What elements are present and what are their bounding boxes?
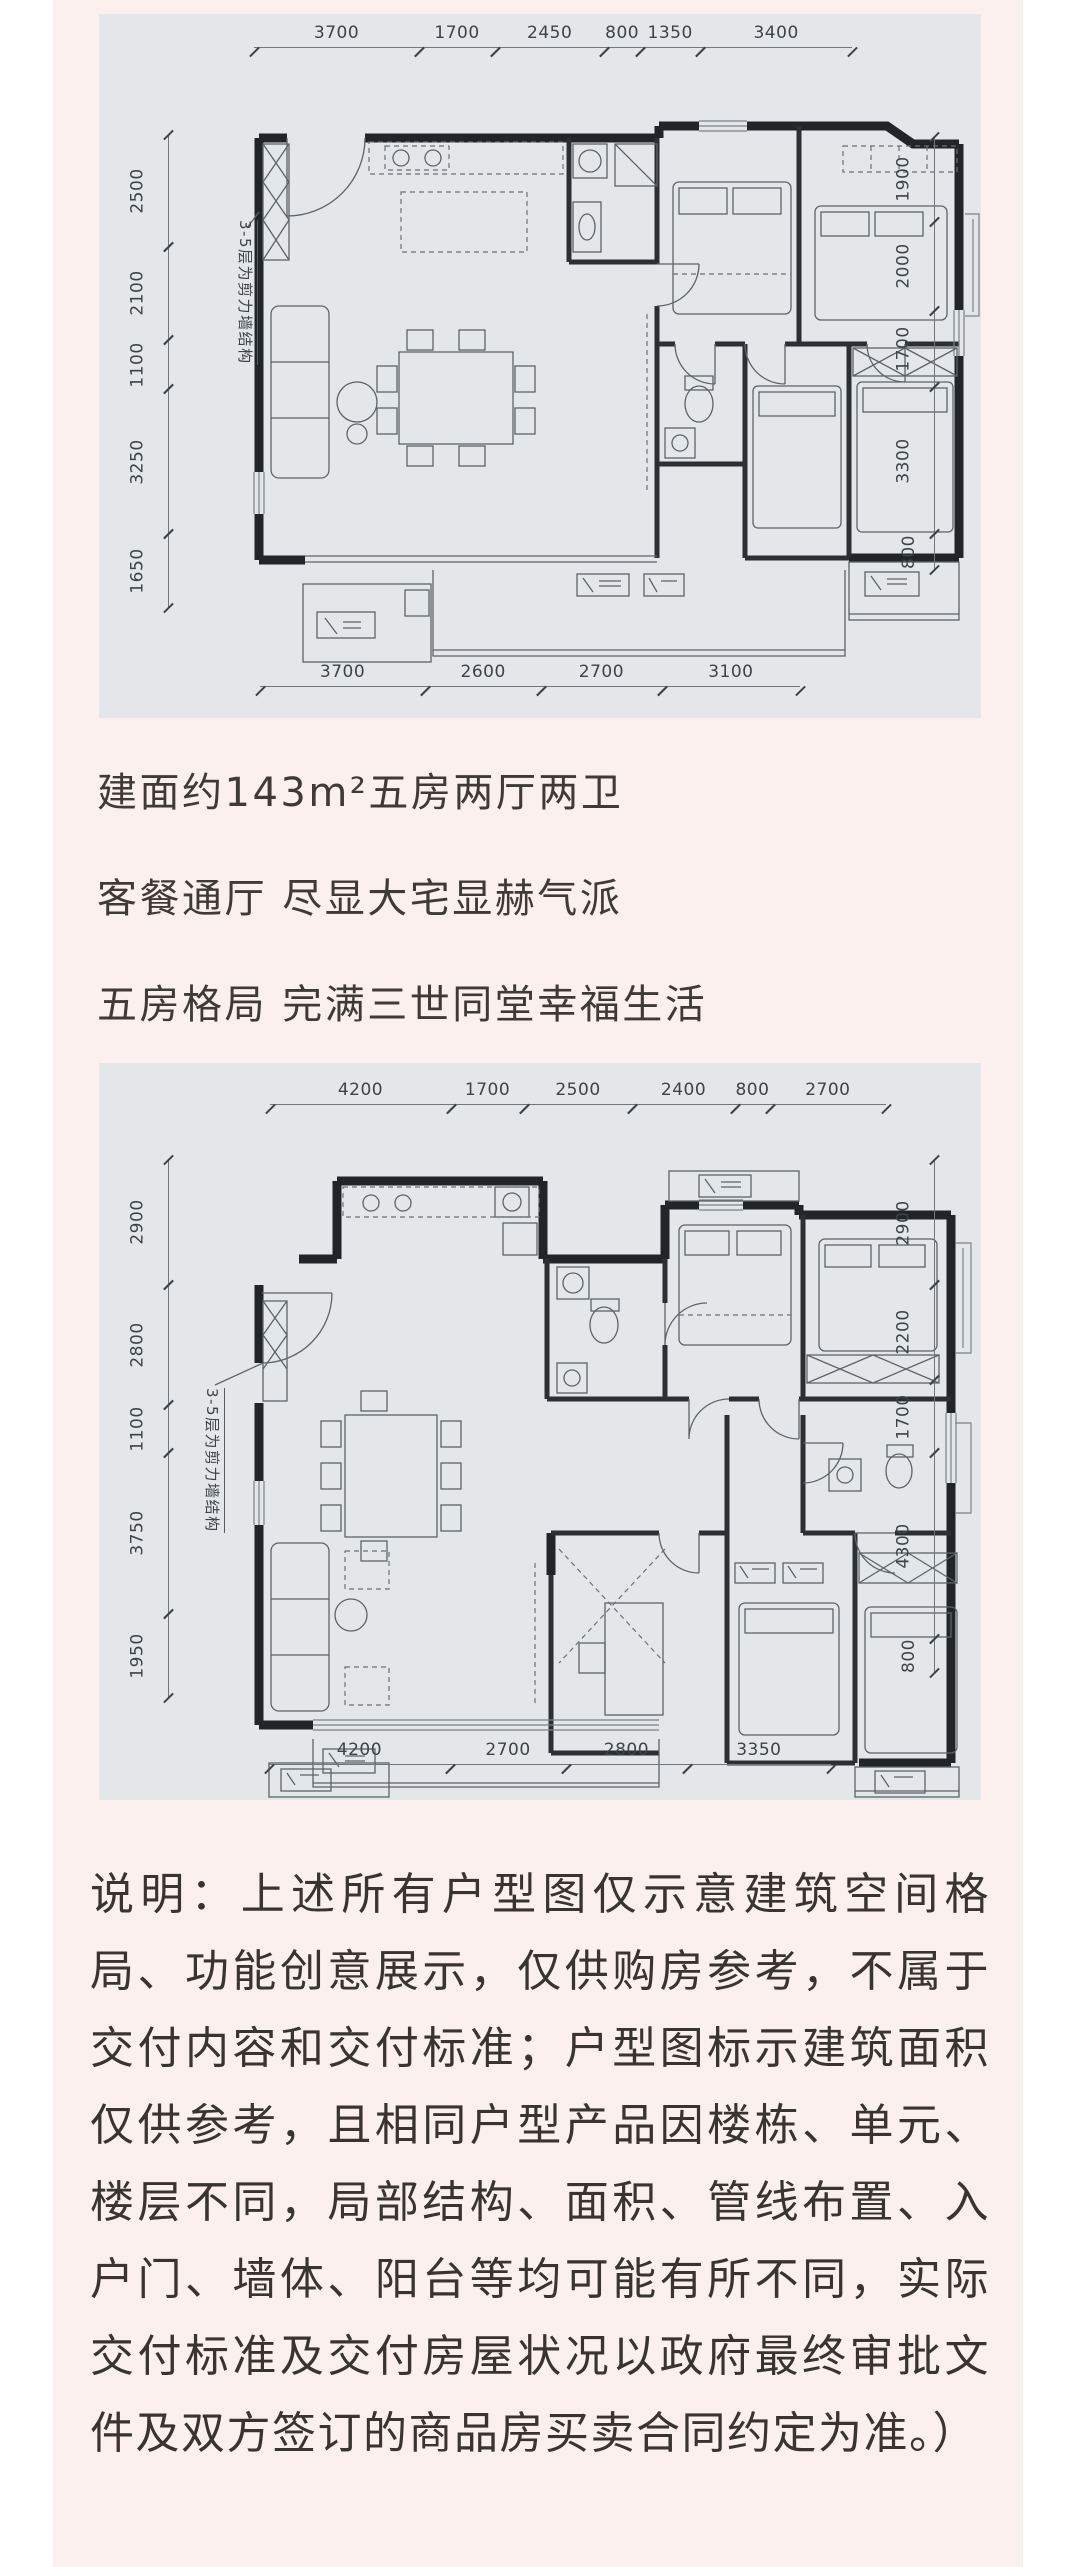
dimension-segment: 2500 [524,1079,632,1105]
headline-line-3: 五房格局 完满三世同堂幸福生活 [97,952,707,1058]
floor-plan-2: 42001700250024008002700 2900280011003750… [99,1063,981,1800]
dimension-label: 800 [735,1080,769,1100]
dimension-label: 3400 [753,23,798,43]
dimension-segment: 1100 [127,340,169,389]
dimension-label: 1950 [127,1633,147,1678]
dimension-label: 2400 [661,1080,706,1100]
dimension-segment: 2600 [425,661,541,687]
dimension-segment: 3350 [687,1739,831,1765]
dimension-segment: 3700 [254,22,419,48]
dimension-segment: 1700 [419,22,495,48]
plan1-structure-note: 3-5层为剪力墙结构 [235,220,258,365]
dimension-segment: 1350 [640,22,700,48]
dimension-segment: 2450 [495,22,604,48]
dimension-label: 1350 [648,23,693,43]
dimension-label: 1900 [893,157,913,202]
dimension-label: 3750 [127,1511,147,1556]
dimension-label: 1700 [465,1080,510,1100]
dimension-segment: 1100 [127,1405,169,1452]
dimension-label: 1650 [127,549,147,594]
dimension-label: 4300 [893,1523,913,1568]
dimension-segment: 800 [735,1079,769,1105]
dimension-label: 800 [605,23,639,43]
dimension-label: 2600 [461,662,506,682]
plan1-dims-top: 37001700245080013503400 [254,22,852,48]
headline-line-1: 建面约143m²五房两厅两卫 [97,740,707,846]
dimension-segment: 1700 [893,311,935,387]
dimension-label: 3100 [708,662,753,682]
dimension-label: 3250 [127,439,147,484]
dimension-segment: 800 [893,534,935,570]
floor-plan-drawing-2 [99,1063,981,1800]
dimension-segment: 3700 [260,661,425,687]
dimension-segment: 2500 [127,135,169,247]
dimension-label: 1700 [434,23,479,43]
plan2-dims-bottom: 4200270028003350 [269,1739,831,1765]
disclaimer-text: 说明：上述所有户型图仅示意建筑空间格局、功能创意展示，仅供购房参考，不属于交付内… [90,1856,990,2472]
dimension-label: 3300 [893,438,913,483]
dimension-segment: 3300 [893,387,935,534]
floor-plan-drawing-1 [99,14,981,718]
dimension-segment: 2800 [566,1739,687,1765]
dimension-label: 3700 [314,23,359,43]
dimension-label: 2800 [604,1740,649,1760]
dimension-label: 2500 [127,168,147,213]
dimension-segment: 2800 [127,1285,169,1406]
dimension-label: 3350 [736,1740,781,1760]
dimension-segment: 3400 [700,22,852,48]
dimension-label: 2800 [127,1322,147,1367]
plan2-dims-left: 29002800110037501950 [127,1160,169,1698]
dimension-segment: 3250 [127,389,169,534]
plan1-dims-bottom: 3700260027003100 [260,661,800,687]
dimension-segment: 2400 [632,1079,735,1105]
headline-line-2: 客餐通厅 尽显大宅显赫气派 [97,846,707,952]
dimension-label: 2700 [805,1080,850,1100]
dimension-label: 1700 [893,326,913,371]
dimension-label: 1100 [127,342,147,387]
dimension-segment: 3100 [662,661,800,687]
dimension-label: 2700 [579,662,624,682]
headline: 建面约143m²五房两厅两卫 客餐通厅 尽显大宅显赫气派 五房格局 完满三世同堂… [97,740,707,1058]
dimension-segment: 4300 [893,1453,935,1638]
dimension-label: 800 [899,1639,919,1673]
dimension-label: 2100 [127,271,147,316]
dimension-segment: 2000 [893,222,935,311]
dimension-label: 3700 [320,662,365,682]
dimension-label: 800 [899,535,919,569]
plan1-dims-right: 1900200017003300800 [893,137,935,570]
dimension-segment: 4200 [270,1079,451,1105]
floor-plan-1: 37001700245080013503400 2500210011003250… [99,14,981,718]
dimension-segment: 800 [604,22,640,48]
plan1-dims-left: 25002100110032501650 [127,135,169,608]
dimension-segment: 1700 [893,1380,935,1453]
promo-page: { "plans": { "plan1": { "dims_top": ["37… [0,0,1080,2567]
dimension-segment: 800 [893,1639,935,1673]
pink-card: 37001700245080013503400 2500210011003250… [53,0,1023,2567]
dimension-label: 2000 [893,244,913,289]
dimension-segment: 2200 [893,1285,935,1380]
dimension-label: 2200 [893,1310,913,1355]
dimension-segment: 2900 [127,1160,169,1285]
plan2-dims-top: 42001700250024008002700 [270,1079,886,1105]
dimension-segment: 4200 [269,1739,450,1765]
dimension-label: 2500 [555,1080,600,1100]
plan2-structure-note: 3-5层为剪力墙结构 [202,1388,225,1533]
dimension-segment: 2700 [450,1739,566,1765]
dimension-segment: 2700 [770,1079,886,1105]
dimension-segment: 2100 [127,247,169,341]
dimension-label: 1100 [127,1406,147,1451]
dimension-segment: 1950 [127,1614,169,1698]
dimension-segment: 1900 [893,137,935,222]
dimension-label: 4200 [338,1080,383,1100]
dimension-label: 2900 [893,1200,913,1245]
plan2-dims-right: 2900220017004300800 [893,1160,935,1673]
dimension-segment: 1700 [451,1079,524,1105]
dimension-segment: 2900 [893,1160,935,1285]
dimension-label: 2450 [527,23,572,43]
dimension-label: 2900 [127,1200,147,1245]
dimension-label: 4200 [337,1740,382,1760]
dimension-label: 2700 [485,1740,530,1760]
dimension-segment: 1650 [127,534,169,608]
dimension-segment: 3750 [127,1453,169,1614]
dimension-label: 1700 [893,1394,913,1439]
dimension-segment: 2700 [541,661,662,687]
